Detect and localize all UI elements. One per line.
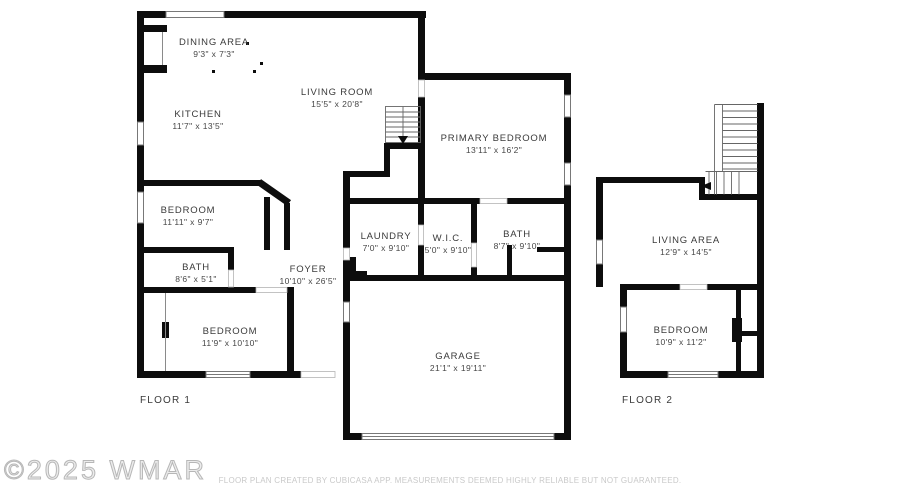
floor1-door-openings [229,80,508,378]
floor2-door-openings [680,285,707,290]
door-opening [256,288,287,293]
window [565,95,571,117]
door-opening [344,248,350,260]
door-opening [472,243,477,267]
window [565,163,571,185]
window [597,240,603,264]
door-opening [680,285,707,290]
door-opening [480,199,507,204]
copyright-watermark: ©2025 WMAR [4,455,207,486]
floor2-walls [596,103,764,378]
floor1-caption: FLOOR 1 [140,395,191,406]
door-opening [419,80,425,97]
staircase-floor1 [386,107,421,145]
staircase-floor2 [701,105,758,195]
floorplan-page: DINING AREA 9'3" x 7'3" LIVING ROOM 15'5… [0,0,900,500]
floor-plan-drawing [0,0,900,500]
window [138,122,144,145]
floor1-walls [137,11,571,440]
floor2-caption: FLOOR 2 [622,395,673,406]
front-door-opening [301,372,335,378]
disclaimer-text: FLOOR PLAN CREATED BY CUBICASA APP. MEAS… [219,476,682,485]
floor2-windows [597,240,719,378]
door-opening [419,225,424,245]
floor1-thin-partitions [163,32,166,371]
window [138,192,144,223]
window [166,12,224,18]
door-opening [229,270,234,287]
window [621,307,627,332]
window [344,302,350,322]
